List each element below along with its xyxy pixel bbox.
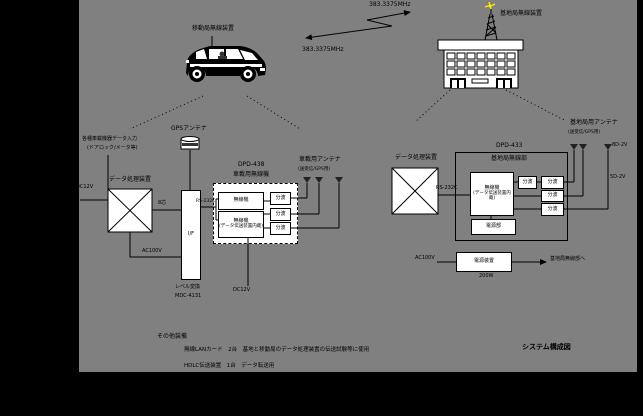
base-filter-1: 分波 bbox=[541, 176, 564, 189]
base-psu-box: 電源装置 bbox=[456, 252, 512, 272]
mobile-data-processor-label: データ処理装置 bbox=[109, 177, 151, 184]
base-ac-input-label: AC100V bbox=[415, 256, 435, 262]
mobile-radio1-box: 無線機 bbox=[218, 192, 264, 210]
base-radio-model-label: DPD-433 bbox=[496, 143, 522, 150]
base-antenna-label: 基地局用アンテナ bbox=[570, 120, 618, 127]
mobile-duplexer-1: 分波 bbox=[270, 192, 291, 205]
gps-antenna-label: GPSアンテナ bbox=[171, 126, 207, 133]
radio1-label: 無線機 bbox=[233, 198, 248, 204]
model-number-label: MDC-4131 bbox=[175, 294, 201, 300]
psu-inner-label: 電源部 bbox=[486, 224, 501, 230]
filter-label: 分波 bbox=[547, 193, 557, 199]
radio2-sublabel: (データ伝送装置内蔵) bbox=[219, 225, 263, 230]
psu-rating-label: 200W bbox=[479, 274, 494, 280]
bus-label: 8芯 bbox=[158, 201, 166, 207]
base-filter-2: 分波 bbox=[541, 190, 564, 202]
mobile-station-label: 移動局無線装置 bbox=[192, 26, 234, 33]
mobile-power-wire-label: AC100V bbox=[142, 249, 162, 255]
notes-line-2: HDLC伝送装置 1台 データ転送用 bbox=[184, 363, 274, 369]
mobile-duplexer-2: 分波 bbox=[270, 208, 291, 221]
base-rs232c-label: RS-232C bbox=[436, 186, 458, 192]
level-converter-label: レベル変換 bbox=[175, 285, 200, 291]
duplexer-label: 分波 bbox=[275, 226, 285, 232]
mobile-radio-power-label: DC12V bbox=[233, 288, 250, 294]
mobile-radio-model-label: DPD-438 bbox=[238, 162, 264, 169]
coax-label-2: 5D-2V bbox=[610, 175, 625, 181]
base-station-label: 基地局無線装置 bbox=[500, 11, 542, 18]
mobile-antenna-label: 車載用アンテナ bbox=[299, 157, 341, 164]
duplexer-label: 分波 bbox=[522, 180, 532, 186]
frequency-up-label: 383.3375MHz bbox=[369, 2, 410, 9]
duplexer-label: 分波 bbox=[275, 212, 285, 218]
notes-line-1: 無線LANカード 2台 基地と移動局のデータ処理装置の伝送試験等に使用 bbox=[184, 347, 369, 353]
psu-output-label: 基地局無線部へ bbox=[550, 257, 585, 263]
dc-input-label: DC12V bbox=[76, 185, 93, 191]
base-antenna-sublabel: (送受信/GPS用) bbox=[568, 131, 600, 136]
psu-box-label: 電源装置 bbox=[474, 259, 494, 265]
base-data-processor-label: データ処理装置 bbox=[395, 155, 437, 162]
filter-label: 分波 bbox=[547, 180, 557, 186]
diagram-title: システム構成図 bbox=[522, 344, 571, 352]
filter-label: 分波 bbox=[547, 207, 557, 213]
base-filter-3: 分波 bbox=[541, 203, 564, 216]
mobile-duplexer-3: 分波 bbox=[270, 222, 291, 235]
base-radio-sublabel: (データ伝送装置内蔵) bbox=[471, 192, 513, 202]
interface-label: I/F bbox=[188, 232, 194, 238]
mobile-radio2-box: 無線機 (データ伝送装置内蔵) bbox=[218, 211, 264, 238]
frequency-down-label: 383.3375MHz bbox=[302, 47, 343, 54]
base-psu-inner-box: 電源部 bbox=[471, 219, 516, 235]
base-radio-unit-label: 基地局無線部 bbox=[491, 156, 527, 163]
vehicle-input-label-1: 各種車載機器データ入力 bbox=[82, 137, 137, 143]
vehicle-input-label-2: (ドアロック/メータ等) bbox=[87, 146, 138, 152]
coax-label-1: 8D-2V bbox=[612, 143, 627, 149]
mobile-antenna-sublabel: (送受信/GPS用) bbox=[298, 168, 330, 173]
base-duplexer-box: 分波 bbox=[518, 176, 537, 189]
base-radio-box: 無線機 (データ伝送装置内蔵) bbox=[470, 172, 514, 216]
notes-heading: その他装備 bbox=[157, 334, 187, 341]
mobile-radio-unit-label: 車載用無線機 bbox=[233, 172, 269, 179]
system-diagram: I/F 無線機 無線機 (データ伝送装置内蔵) 分波 分波 分波 無線機 (デー… bbox=[0, 0, 643, 416]
mobile-rs232c-label: RS-232C bbox=[196, 200, 215, 205]
duplexer-label: 分波 bbox=[275, 196, 285, 202]
